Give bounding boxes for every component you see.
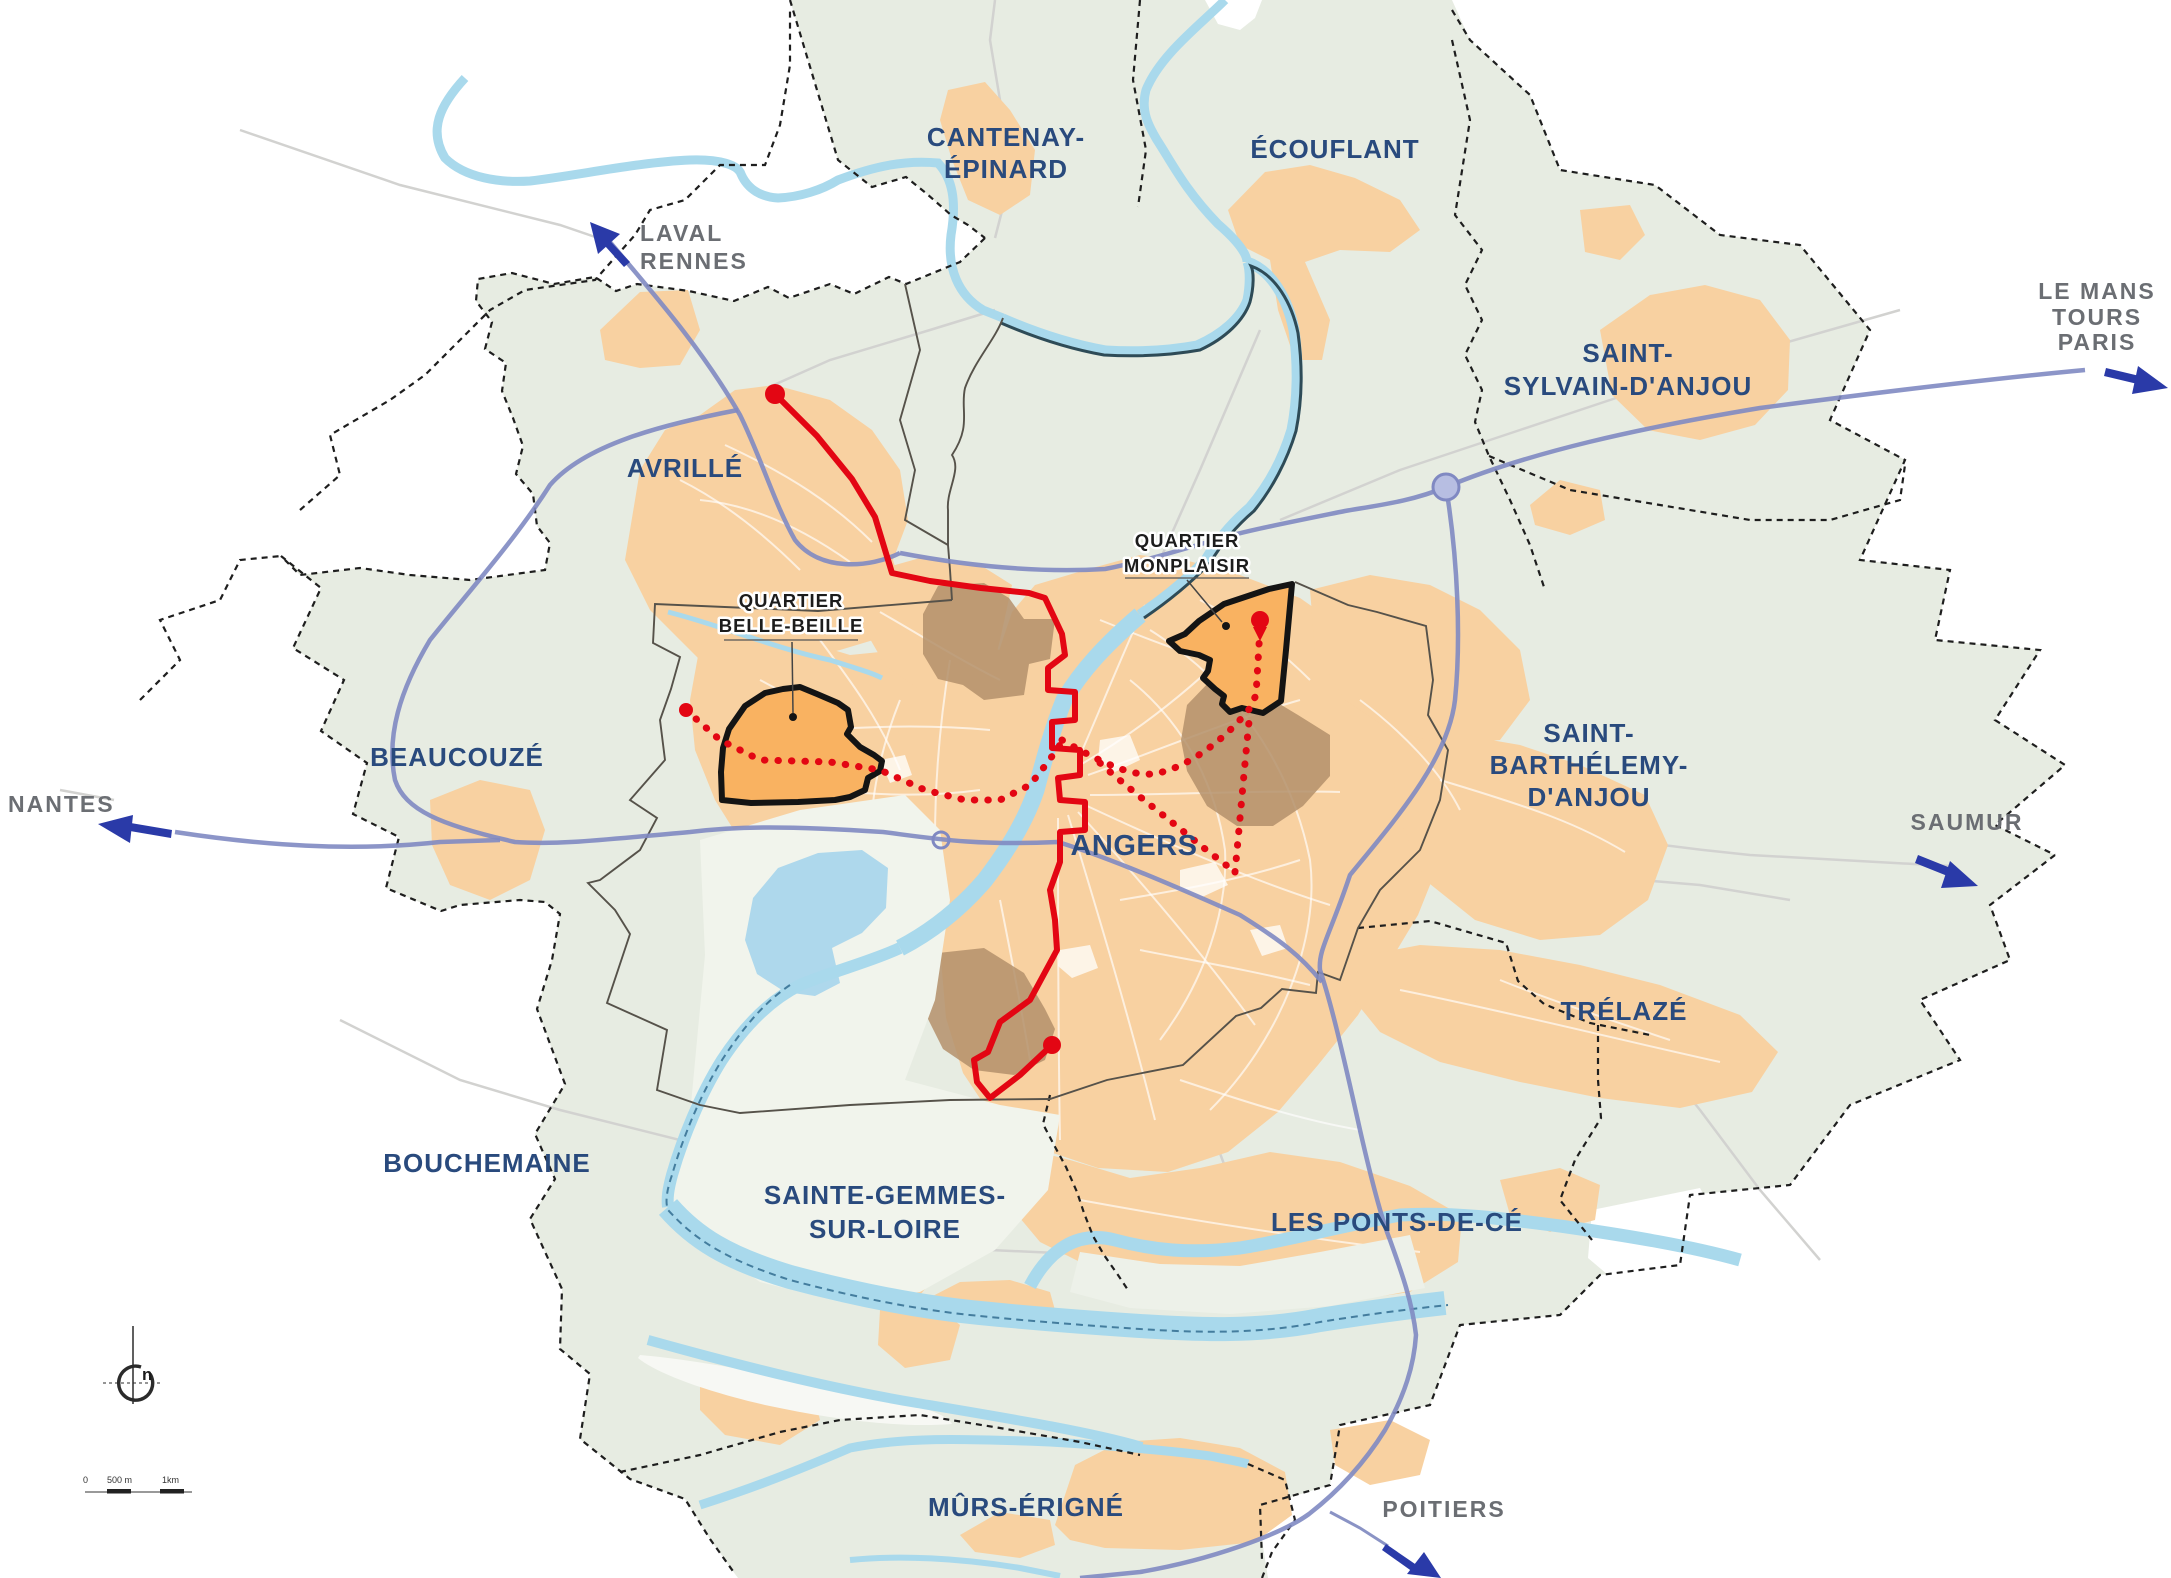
svg-text:LAVAL: LAVAL: [640, 220, 723, 246]
svg-text:SYLVAIN-D'ANJOU: SYLVAIN-D'ANJOU: [1504, 371, 1752, 401]
svg-text:BEAUCOUZÉ: BEAUCOUZÉ: [370, 742, 544, 772]
svg-text:NANTES: NANTES: [8, 791, 115, 817]
svg-text:SAINT-: SAINT-: [1582, 338, 1673, 368]
svg-text:0: 0: [83, 1475, 88, 1485]
svg-text:D'ANJOU: D'ANJOU: [1528, 782, 1651, 812]
svg-text:TRÉLAZÉ: TRÉLAZÉ: [1561, 996, 1688, 1026]
svg-text:ÉPINARD: ÉPINARD: [944, 154, 1068, 184]
svg-text:BARTHÉLEMY-: BARTHÉLEMY-: [1490, 750, 1689, 780]
svg-text:500 m: 500 m: [107, 1475, 132, 1485]
svg-text:ÉCOUFLANT: ÉCOUFLANT: [1250, 134, 1419, 164]
svg-text:ANGERS: ANGERS: [1070, 830, 1197, 862]
svg-text:n: n: [142, 1365, 152, 1384]
svg-text:MONPLAISIR: MONPLAISIR: [1124, 555, 1250, 576]
svg-text:TOURS: TOURS: [2052, 304, 2142, 330]
svg-text:SUR-LOIRE: SUR-LOIRE: [809, 1214, 961, 1244]
svg-text:SAINT-: SAINT-: [1543, 718, 1634, 748]
svg-text:SAUMUR: SAUMUR: [1911, 809, 2024, 835]
svg-text:SAINTE-GEMMES-: SAINTE-GEMMES-: [764, 1180, 1006, 1210]
svg-text:RENNES: RENNES: [640, 248, 748, 274]
svg-text:BOUCHEMAINE: BOUCHEMAINE: [383, 1148, 590, 1178]
svg-text:LES PONTS-DE-CÉ: LES PONTS-DE-CÉ: [1271, 1207, 1523, 1237]
svg-text:BELLE-BEILLE: BELLE-BEILLE: [719, 615, 864, 636]
svg-text:POITIERS: POITIERS: [1382, 1496, 1505, 1522]
svg-text:MÛRS-ÉRIGNÉ: MÛRS-ÉRIGNÉ: [928, 1492, 1124, 1522]
svg-text:CANTENAY-: CANTENAY-: [927, 122, 1085, 152]
svg-text:LE MANS: LE MANS: [2038, 278, 2156, 304]
svg-text:QUARTIER: QUARTIER: [739, 590, 844, 611]
svg-text:AVRILLÉ: AVRILLÉ: [627, 453, 743, 483]
svg-text:1km: 1km: [162, 1475, 179, 1485]
svg-text:PARIS: PARIS: [2058, 329, 2137, 355]
svg-text:QUARTIER: QUARTIER: [1135, 530, 1240, 551]
